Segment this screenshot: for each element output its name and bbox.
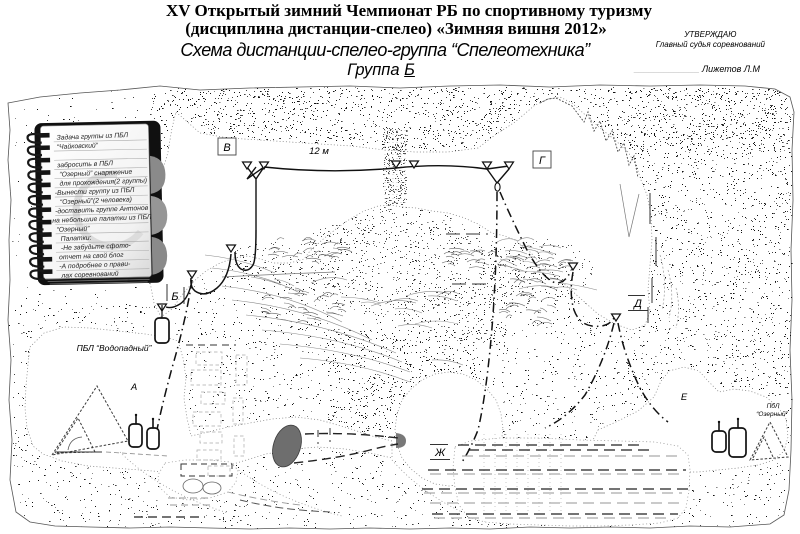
svg-text:В: В bbox=[223, 142, 230, 154]
svg-text:Д: Д bbox=[632, 298, 642, 310]
svg-text:ПБЛ “Водопадный”: ПБЛ “Водопадный” bbox=[77, 343, 153, 353]
svg-text:Е: Е bbox=[681, 392, 688, 403]
svg-text:Ж: Ж bbox=[434, 447, 446, 459]
svg-text:“Озерный”: “Озерный” bbox=[56, 225, 90, 234]
svg-text:ПбЛ: ПбЛ bbox=[767, 402, 780, 410]
svg-text:Б: Б bbox=[171, 291, 178, 303]
svg-text:“Озерный”: “Озерный” bbox=[756, 410, 788, 418]
svg-text:А: А bbox=[130, 382, 137, 393]
svg-text:Г: Г bbox=[539, 155, 546, 167]
svg-text:12 м: 12 м bbox=[309, 146, 329, 157]
svg-text:“Чайковский”: “Чайковский” bbox=[57, 141, 99, 151]
svg-text:Палатки:: Палатки: bbox=[61, 235, 92, 243]
